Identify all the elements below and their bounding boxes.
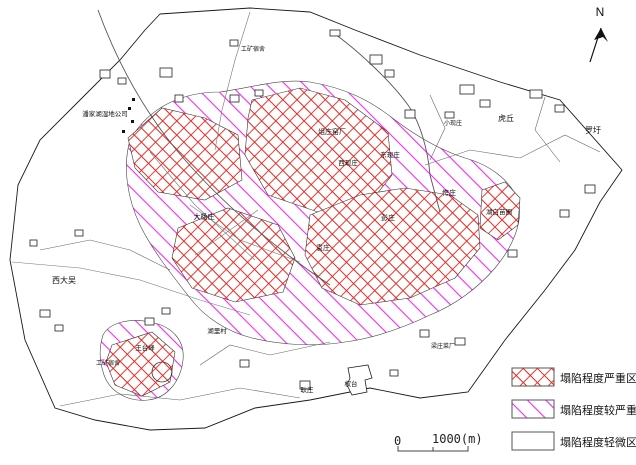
building <box>255 90 263 96</box>
map-label-yuanzhuang: 袁庄 <box>316 243 330 252</box>
building <box>445 112 454 118</box>
building <box>330 30 340 36</box>
building <box>160 68 172 77</box>
building <box>480 100 490 107</box>
building <box>145 318 154 325</box>
building <box>508 250 517 257</box>
map-label-xixianzhuang: 西现庄 <box>338 158 358 167</box>
building <box>75 230 83 236</box>
building <box>30 240 37 246</box>
map-label-panjiahu: 潘家湖湿地公司 <box>82 109 128 118</box>
subsidence-map: 潘家湖湿地公司 工矿宿舍 俎庄窑厂 西现庄 东现庄 小现庄 虎丘 罗圩 侉庄 湖… <box>0 0 636 465</box>
map-label-wangtaifeng: 王台峰 <box>135 343 155 352</box>
building <box>530 90 542 98</box>
building <box>555 105 564 112</box>
map-label-pengzhuang: 彭庄 <box>381 213 395 222</box>
map-label-gongkuang-top: 工矿宿舍 <box>241 45 265 53</box>
legend-label-less-severe: 塌陷程度较严重区 <box>560 403 636 417</box>
building <box>405 110 415 118</box>
map-label-huqiu: 虎丘 <box>498 113 514 123</box>
north-arrow-label: N <box>596 5 605 19</box>
building <box>230 40 238 46</box>
building <box>100 70 110 78</box>
map-label-dayangzhuang: 大杨庄 <box>194 212 215 221</box>
scale-zero-label: 0 <box>394 434 401 448</box>
building <box>420 330 429 337</box>
legend-swatch-severe <box>512 368 554 386</box>
map-label-miaopu: 湖白苗圃 <box>486 207 512 216</box>
map-label-luowei: 罗圩 <box>585 126 601 135</box>
map-label-gengzhuang: 耿庄 <box>301 385 315 394</box>
building <box>390 370 398 376</box>
scale-bar: 0 1000(m) <box>394 432 483 451</box>
building <box>460 85 474 94</box>
map-label-kuazhuang: 侉庄 <box>442 188 456 197</box>
map-label-xiaoxianzhuang: 小现庄 <box>444 119 462 127</box>
map-label-hulicun: 湖里村 <box>207 326 227 335</box>
map-label-dongxianzhuang: 东现庄 <box>380 150 400 159</box>
legend-swatch-light <box>512 432 554 450</box>
north-arrow-head <box>594 28 608 42</box>
north-arrow: N <box>590 5 608 62</box>
legend-label-light: 塌陷程度轻微区 <box>560 435 636 449</box>
building <box>162 308 170 314</box>
building <box>55 325 63 331</box>
legend: 塌陷程度严重区 塌陷程度较严重区 塌陷程度轻微区 <box>512 368 636 450</box>
building <box>370 55 382 64</box>
map-label-quantai: 权台 <box>345 379 358 388</box>
building <box>455 338 465 345</box>
building <box>40 310 50 317</box>
building <box>175 95 183 102</box>
map-label-yaochang: 俎庄窑厂 <box>318 127 346 136</box>
legend-label-severe: 塌陷程度严重区 <box>560 371 636 385</box>
building <box>230 95 239 102</box>
building <box>240 360 249 367</box>
building <box>385 70 394 77</box>
legend-swatch-less-severe <box>512 400 554 418</box>
map-label-caichang: 梁庄菜厂 <box>431 342 455 350</box>
map-label-gongkuang-bottom: 工矿宿舍 <box>96 359 120 367</box>
subsidence-zoning-map-page: 潘家湖湿地公司 工矿宿舍 俎庄窑厂 西现庄 东现庄 小现庄 虎丘 罗圩 侉庄 湖… <box>0 0 636 465</box>
building <box>560 210 569 217</box>
building <box>118 78 126 84</box>
building <box>585 185 595 193</box>
map-label-xidawu: 西大吴 <box>52 275 76 285</box>
scale-max-label: 1000(m) <box>432 432 483 446</box>
